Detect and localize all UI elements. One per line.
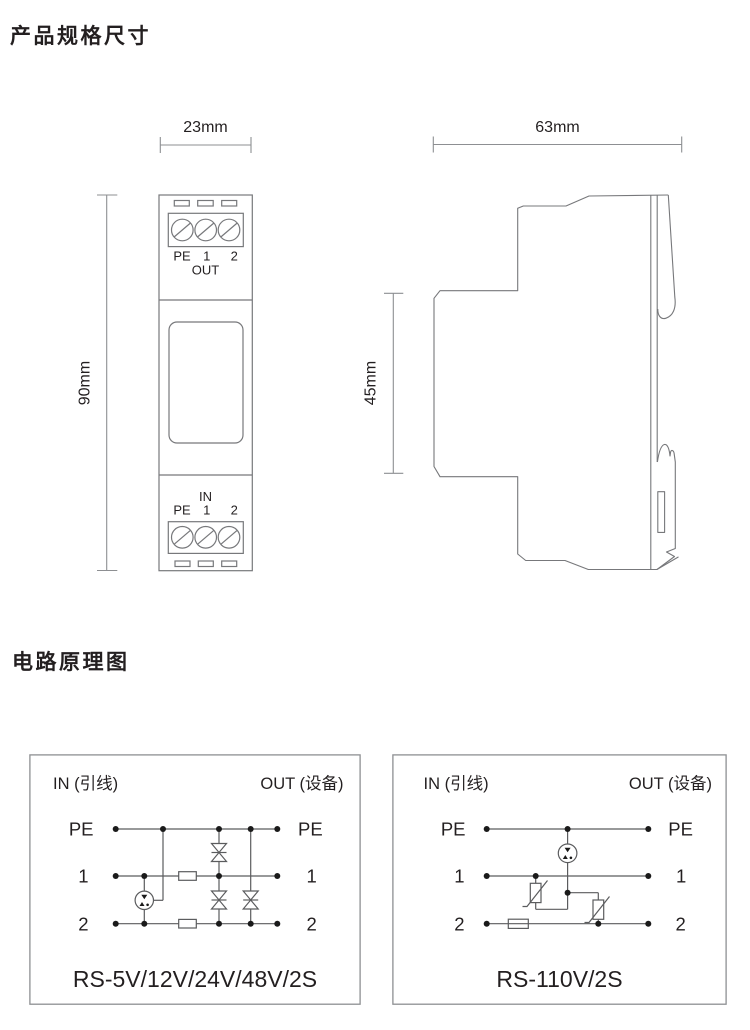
- screw-slot: [221, 530, 237, 544]
- circuit2-left-2: 2: [454, 914, 464, 935]
- circuit1-left-pe: PE: [69, 819, 94, 840]
- front-out-2-label: 2: [231, 249, 238, 264]
- circuit2-left-pe: PE: [441, 819, 466, 840]
- screw-slot: [221, 223, 237, 237]
- circuit1-labels: IN (引线) OUT (设备) PE 1 2 PE 1 2 RS-5V/12V…: [53, 774, 344, 992]
- gdt-dot: [146, 904, 149, 907]
- front-in-2-label: 2: [231, 503, 238, 518]
- tvs-diode-icon: [243, 891, 258, 900]
- varistor-icon: [593, 900, 604, 919]
- din-clip-slot: [658, 492, 665, 533]
- front-in-pe-label: PE: [173, 503, 191, 518]
- circuit-diagram-1: IN (引线) OUT (设备) PE 1 2 PE 1 2 RS-5V/12V…: [29, 754, 361, 1005]
- vent-slot: [222, 561, 237, 567]
- circuit1-left-1: 1: [78, 866, 88, 887]
- tvs-diode-icon: [212, 844, 227, 853]
- tvs-diode-icon: [212, 891, 227, 900]
- front-label-window: [169, 322, 243, 443]
- circuit2-right-2: 2: [676, 914, 686, 935]
- tvs-diode-icon: [243, 900, 258, 909]
- circuit2-in-label: IN (引线): [424, 774, 489, 793]
- dimension-labels: 23mm 63mm 90mm 45mm: [77, 119, 580, 405]
- screw-slot: [198, 530, 214, 544]
- side-body-outline: [434, 195, 679, 570]
- screw-slot: [174, 530, 190, 544]
- front-width-dim-label: 23mm: [183, 119, 227, 136]
- front-out-port-label: OUT: [192, 263, 220, 278]
- circuit2-model: RS-110V/2S: [496, 966, 622, 992]
- circuit2-left-1: 1: [454, 866, 464, 887]
- circuit-section-title: 电路原理图: [12, 646, 130, 676]
- front-in-1-label: 1: [203, 503, 210, 518]
- gdt-dot: [570, 857, 573, 860]
- side-view: [434, 195, 679, 570]
- front-out-1-label: 1: [203, 249, 210, 264]
- tvs-diode-icon: [212, 853, 227, 862]
- circuit2-right-1: 1: [676, 866, 686, 887]
- circuit2-out-label: OUT (设备): [629, 774, 712, 793]
- vent-slot: [222, 201, 237, 207]
- gas-discharge-tube-icon: [135, 891, 153, 909]
- circuit1-out-label: OUT (设备): [260, 774, 343, 793]
- vent-slot: [175, 561, 190, 567]
- tvs-diode-icon: [212, 900, 227, 909]
- screw-slot: [198, 223, 214, 237]
- circuit1-model: RS-5V/12V/24V/48V/2S: [73, 966, 317, 992]
- din-clip: [657, 444, 675, 569]
- vent-slot: [198, 201, 214, 207]
- vent-slot: [198, 561, 213, 567]
- front-out-pe-label: PE: [173, 249, 191, 264]
- resistor-icon: [179, 872, 197, 881]
- side-fin-hook: [658, 195, 675, 319]
- circuit2-wiring: [487, 829, 649, 928]
- gas-discharge-tube-icon: [558, 844, 577, 863]
- datasheet-page: 产品规格尺寸 电路原理图 23mm 63mm 90mm: [0, 0, 750, 1030]
- circuit-diagram-2: IN (引线) OUT (设备) PE 1 2 PE 1 2 RS-110V/2…: [392, 754, 727, 1005]
- screw-slot: [174, 223, 190, 237]
- circuit1-wiring: [116, 829, 278, 928]
- front-view-labels: PE 1 2 OUT IN PE 1 2: [173, 249, 238, 518]
- circuit1-in-label: IN (引线): [53, 774, 118, 793]
- front-height-dim-label: 90mm: [77, 361, 94, 405]
- circuit2-right-pe: PE: [668, 819, 693, 840]
- vent-slot: [174, 201, 189, 207]
- resistor-icon: [179, 919, 197, 928]
- spec-drawing: 23mm 63mm 90mm 45mm: [0, 60, 750, 620]
- circuit1-right-pe: PE: [298, 819, 323, 840]
- circuit1-right-1: 1: [307, 866, 317, 887]
- side-width-dim-label: 63mm: [535, 119, 579, 136]
- side-height-dim-label: 45mm: [363, 361, 380, 405]
- circuit1-right-2: 2: [307, 914, 317, 935]
- circuit1-left-2: 2: [78, 914, 88, 935]
- spec-section-title: 产品规格尺寸: [10, 20, 151, 50]
